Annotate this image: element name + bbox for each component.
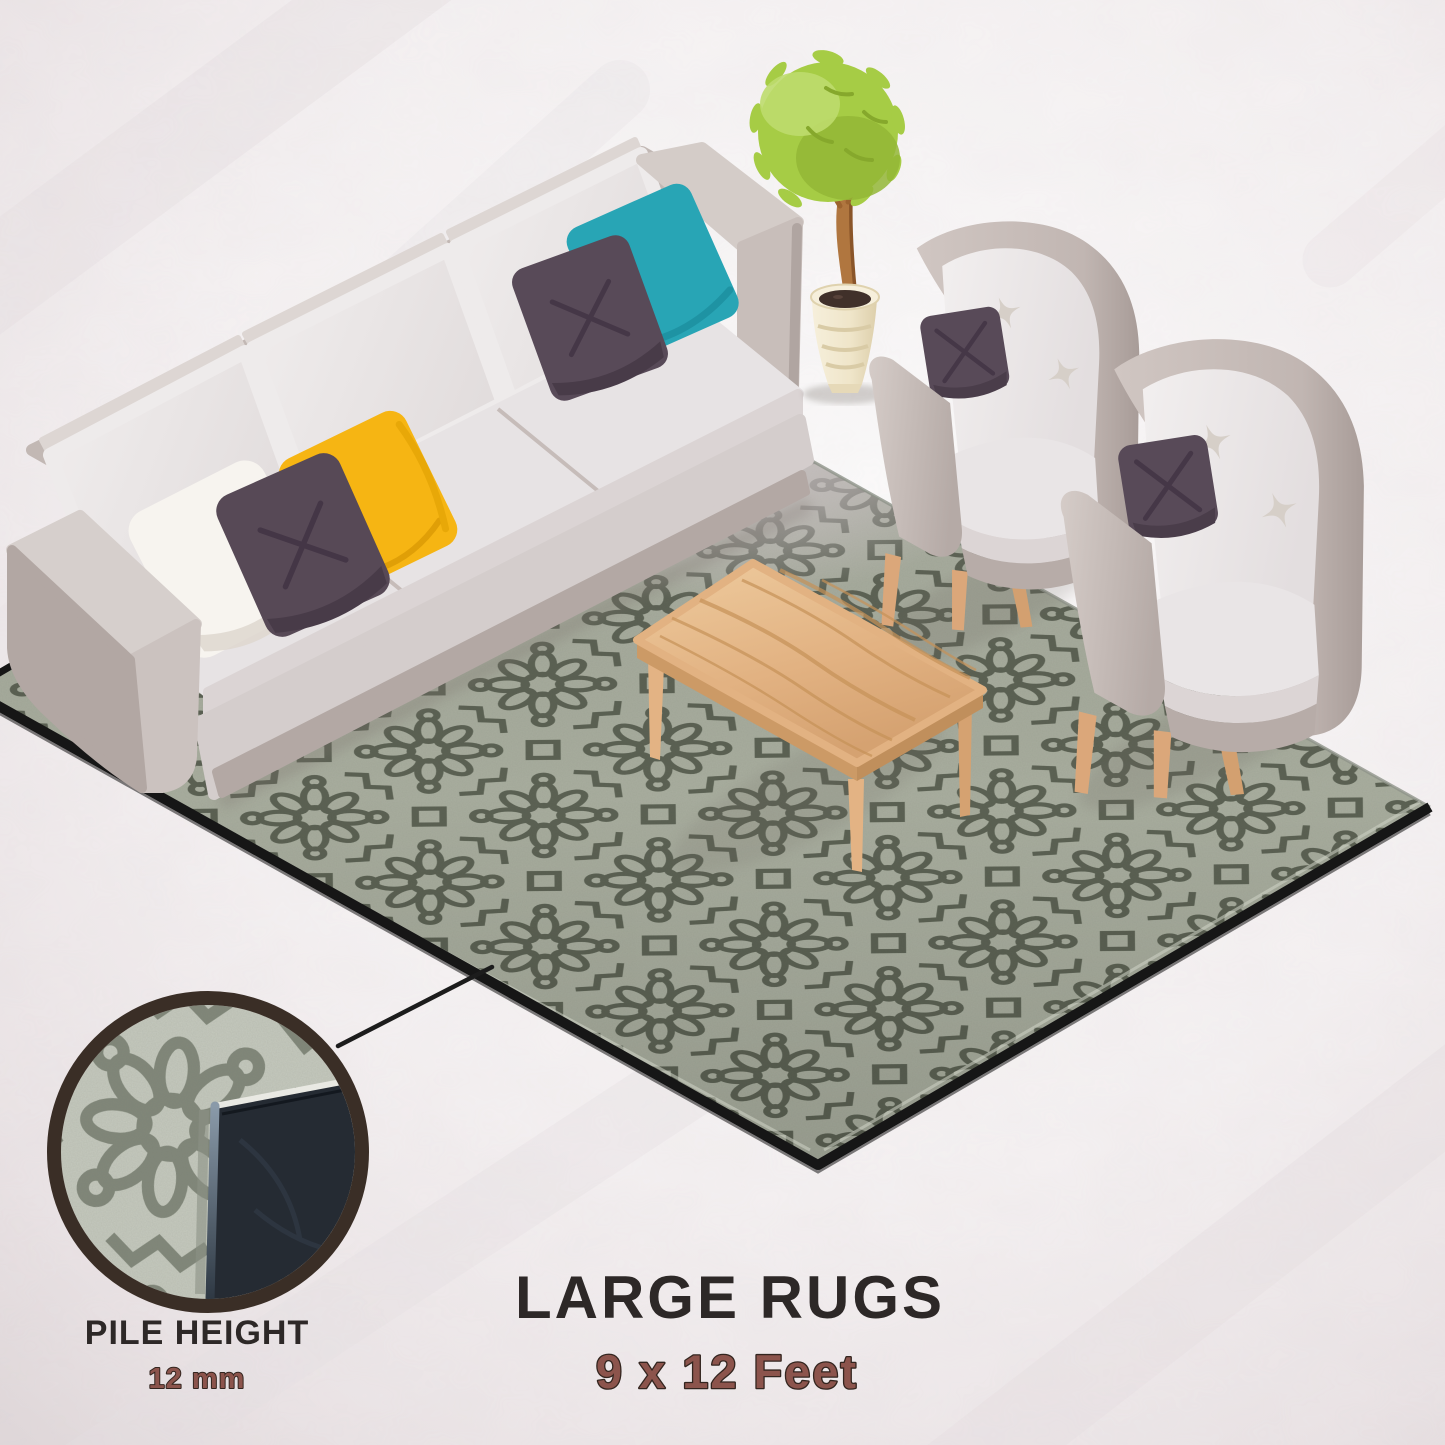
pile-height-value: 12 mm [149,1363,246,1395]
pile-height-label: PILE HEIGHT [85,1314,309,1352]
rug-size-infographic: PILE HEIGHT 12 mm LARGE RUGS 9 x 12 Feet [0,0,1445,1445]
caption-size: 9 x 12 Feet [596,1345,858,1398]
living-room-illustration: PILE HEIGHT 12 mm LARGE RUGS 9 x 12 Feet [0,0,1445,1445]
caption-title: LARGE RUGS [515,1264,945,1331]
